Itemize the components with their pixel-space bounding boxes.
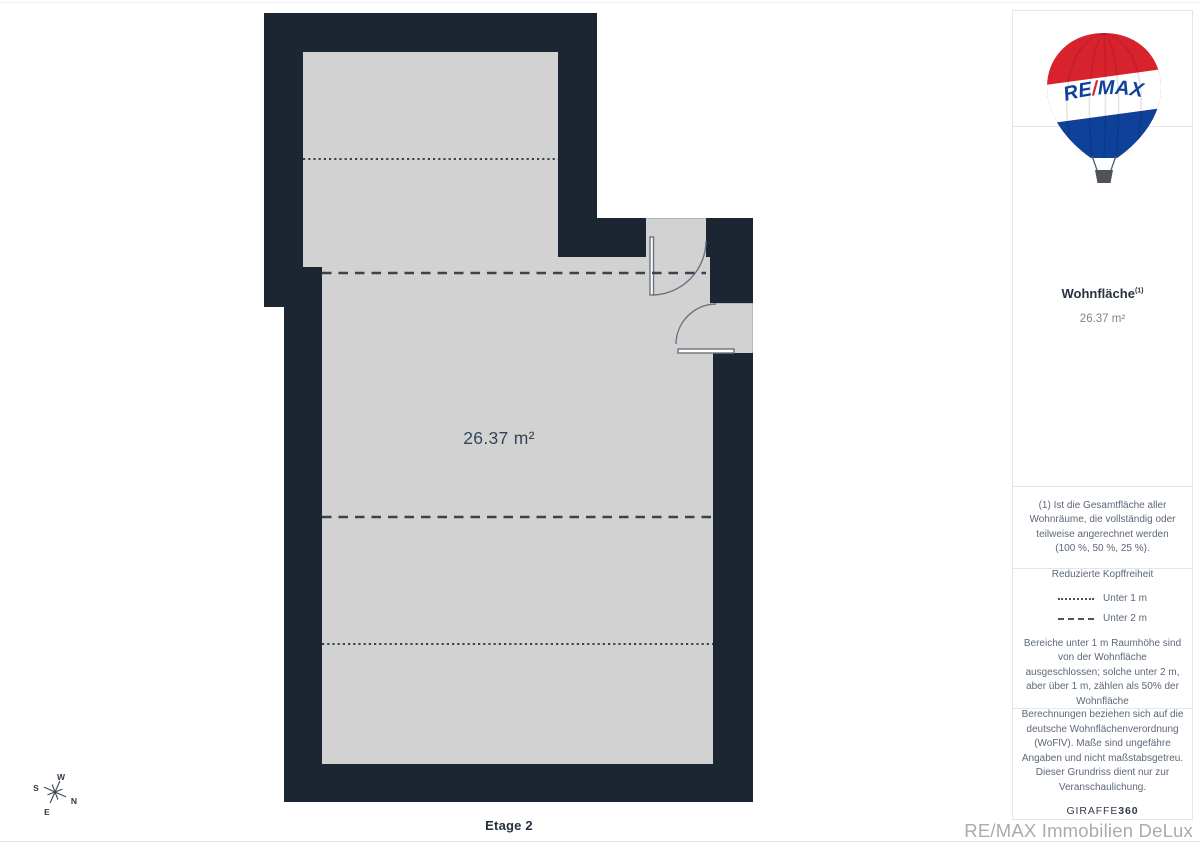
- page-bottom-hairline: [0, 841, 1200, 842]
- legend-item: Unter 2 m: [1058, 612, 1147, 627]
- door-1-leaf: [650, 237, 654, 295]
- floor-region: [646, 218, 706, 257]
- giraffe360-logo: GIRAFFE360: [1066, 804, 1138, 819]
- legend-item-label: Unter 1 m: [1103, 592, 1147, 607]
- disclaimer-text: Berechnungen beziehen sich auf die deuts…: [1019, 708, 1186, 795]
- floor-region: [558, 257, 710, 269]
- wall-segment: [284, 764, 753, 802]
- legend-title: Reduzierte Kopffreiheit: [1052, 568, 1154, 583]
- dashed-line-icon: [1058, 618, 1094, 620]
- floor-region: [700, 303, 753, 353]
- wall-segment: [284, 267, 322, 802]
- compass-label-e: E: [44, 807, 50, 817]
- legend-item: Unter 1 m: [1058, 592, 1147, 607]
- door-2-leaf: [678, 349, 734, 353]
- wall-segment: [710, 257, 753, 303]
- living-area-label: Wohnfläche: [1062, 286, 1135, 301]
- wall-segment: [713, 353, 753, 802]
- dotted-line-icon: [1058, 598, 1094, 600]
- living-area-footnote-marker: (1): [1135, 288, 1144, 295]
- compass-label-w: W: [57, 772, 66, 782]
- room-area-label: 26.37 m²: [463, 428, 534, 448]
- floorplan-page: 26.37 m² W S N E Etage 2 Wohnfläche(1) 2…: [0, 0, 1200, 848]
- remax-balloon-logo: RE/MAX: [1045, 31, 1163, 187]
- living-area-title: Wohnfläche(1): [1062, 285, 1144, 304]
- disclaimer-card: Berechnungen beziehen sich auf die deuts…: [1012, 708, 1193, 820]
- compass-rose: W S N E: [33, 772, 77, 817]
- legend-item-label: Unter 2 m: [1103, 612, 1147, 627]
- giraffe-360: 360: [1118, 805, 1138, 817]
- remax-wordmark-max: MAX: [1097, 77, 1146, 102]
- floor-label: Etage 2: [409, 818, 609, 833]
- wall-segment: [264, 13, 303, 307]
- wall-segment: [558, 218, 646, 257]
- compass-label-s: S: [33, 783, 39, 793]
- balloon-basket: [1095, 170, 1113, 183]
- compass-label-n: N: [71, 796, 77, 806]
- wall-segment: [264, 13, 597, 52]
- legend-card: Reduzierte Kopffreiheit Unter 1 m Unter …: [1012, 568, 1193, 709]
- wall-segment: [706, 218, 753, 257]
- footnote-card: (1) Ist die Gesamtfläche aller Wohnräume…: [1012, 486, 1193, 569]
- basket-ropes: [1092, 156, 1116, 170]
- watermark-text: RE/MAX Immobilien DeLux: [964, 820, 1193, 842]
- giraffe-brand: GIRAFFE: [1066, 805, 1118, 817]
- living-area-value: 26.37 m²: [1080, 311, 1125, 328]
- legend-note: Bereiche unter 1 m Raumhöhe sind von der…: [1022, 637, 1183, 710]
- footnote-text: (1) Ist die Gesamtfläche aller Wohnräume…: [1025, 499, 1180, 557]
- compass-rays: [44, 781, 66, 803]
